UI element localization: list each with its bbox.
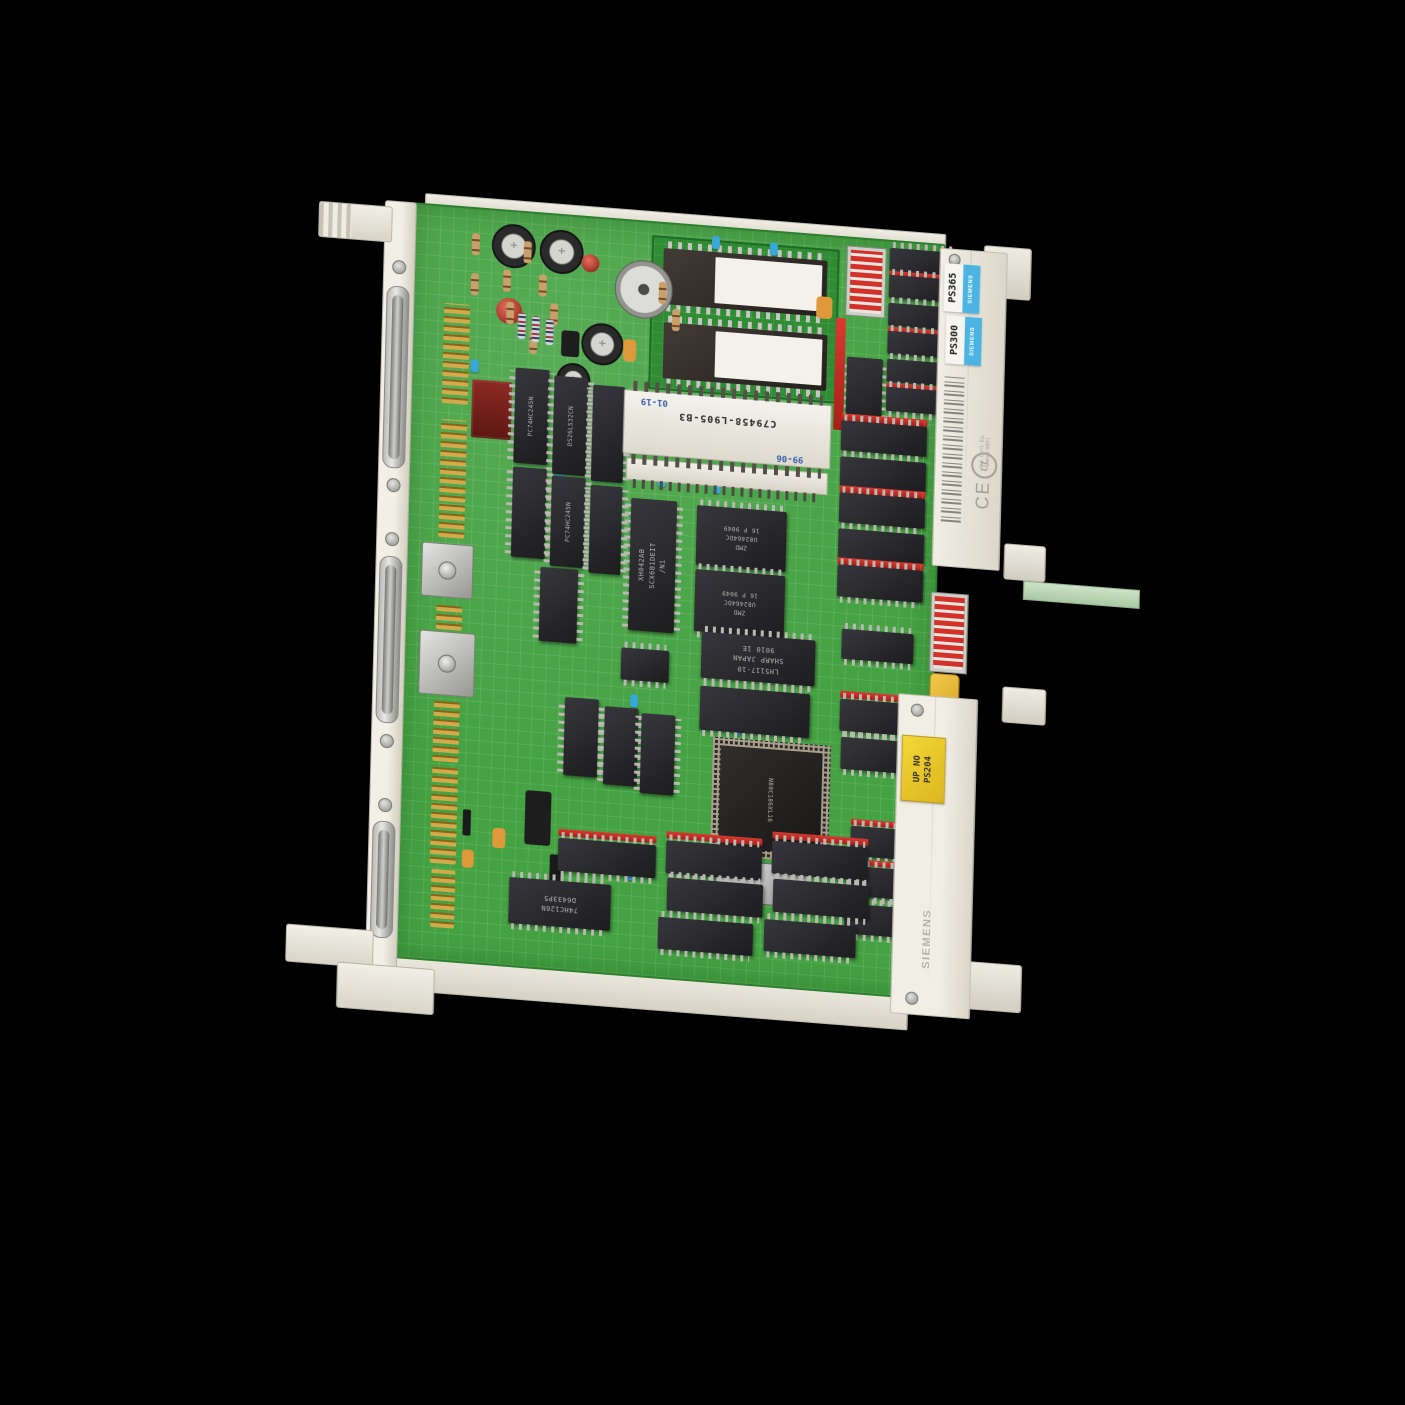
dipswitch [930, 593, 968, 674]
dip-chip [699, 686, 810, 739]
mount-tab [964, 961, 1022, 1013]
rail-screw [905, 991, 918, 1005]
dip-chip: XH042AB SCX6B1DEIT /N1 [628, 498, 677, 634]
dip-chip [621, 647, 670, 683]
part-number-sticker: C79458-L905-B3 [624, 406, 830, 433]
eprom-label-blank [714, 257, 822, 311]
pcb: C79458-L905-B3 01-19 99-06 PC74HC245NDS2… [393, 202, 946, 1000]
cap-disc [581, 254, 599, 273]
res2 [545, 319, 554, 346]
dsub-connector [375, 555, 402, 724]
panel-screw [378, 798, 392, 813]
pins [438, 419, 467, 539]
chip-marking: 74HC126N D6433P5 [508, 877, 611, 931]
chip-marking: N80C186XL16 [710, 737, 831, 864]
panel-foot [336, 962, 435, 1016]
dip-chip [837, 564, 924, 603]
cap-tan [623, 339, 637, 362]
panel-screw [380, 734, 394, 749]
panel-screw [392, 260, 406, 275]
diode [462, 809, 471, 836]
res [523, 241, 532, 264]
pins [436, 605, 463, 631]
res [472, 233, 481, 256]
eprom-chip [662, 248, 827, 317]
dip-chip [558, 838, 657, 879]
module-connector: C79458-L905-B3 01-19 99-06 [622, 389, 831, 469]
dip-chip [773, 879, 870, 920]
chip-marking: ZMD U82464DC 16 P 9049 [696, 505, 787, 572]
model-text: PS365 [947, 272, 959, 303]
brand-text: SIEMENS [968, 275, 975, 304]
barcode [941, 376, 965, 523]
circuit-board: C79458-L905-B3 01-19 99-06 PC74HC245NDS2… [363, 200, 1173, 1092]
board-edge-ledge [1023, 581, 1140, 609]
tr [524, 790, 551, 846]
shield [421, 541, 474, 599]
dipswitch [846, 246, 886, 317]
dip-chip: DS26LS32CN [552, 376, 589, 477]
yellow-id-label: UP NO PS204 [900, 735, 946, 804]
shield [418, 629, 476, 697]
dip-chip [640, 713, 676, 796]
handle-grip-ribs [319, 202, 352, 239]
cap-blu [630, 694, 638, 708]
res [539, 274, 548, 297]
product-photo-siemens-pcb: C79458-L905-B3 01-19 99-06 PC74HC245NDS2… [0, 0, 1405, 1405]
dip-chip: PC74HC245N [549, 476, 585, 569]
mount-tab [1002, 686, 1047, 725]
dip-chip [591, 385, 625, 483]
qfp: N80C186XL16 [710, 737, 831, 864]
cap-el [539, 228, 584, 275]
dsub-connector [382, 285, 410, 469]
date-code: 99-06 [776, 452, 803, 464]
res [506, 302, 515, 325]
brand-text: SIEMENS [970, 327, 977, 356]
chip-marking: LH5117-10 SHARP JAPAN 9010 1E [701, 632, 816, 687]
pins [430, 869, 455, 929]
mount-tab [1003, 543, 1046, 582]
product-label-ps365: PS365 SIEMENS [943, 263, 980, 314]
eprom-label-blank [714, 331, 822, 385]
res2 [517, 313, 526, 340]
pins [430, 767, 458, 865]
yellow-label-text: UP NO PS204 [912, 755, 934, 784]
dip-chip [763, 919, 856, 958]
cap-tan [816, 296, 833, 319]
res2 [531, 316, 540, 343]
front-rail-lower: UP NO PS204 SIEMENS [890, 693, 978, 1019]
tr [561, 330, 580, 357]
pins [432, 699, 460, 763]
res [658, 282, 667, 305]
dip-chip: LH5117-10 SHARP JAPAN 9010 1E [701, 632, 816, 687]
dsub-connector [370, 820, 396, 939]
cert-text: Listed 9B01 [985, 437, 992, 467]
dip-chip: 74HC126N D6433P5 [508, 877, 611, 931]
eprom-chip [662, 322, 827, 391]
date-code: 01-19 [641, 395, 668, 407]
dip-chip [563, 697, 599, 778]
cap-blu [770, 242, 778, 256]
ce-mark: CE [972, 480, 994, 511]
cap-tan [462, 849, 474, 868]
dip-chip: ZMD U82464DC 16 P 9049 [696, 505, 787, 572]
res [471, 273, 480, 296]
pins [442, 303, 471, 405]
dip-chip [841, 629, 914, 665]
front-rail-upper: PS365 SIEMENS PS300 SIEMENS CE UL Ind. C… [932, 248, 1008, 571]
res [503, 269, 512, 292]
extractor-handle-top [318, 201, 393, 243]
model-text: PS300 [949, 325, 961, 356]
panel-screw [386, 478, 400, 493]
cap-el [581, 322, 624, 367]
cap-tan [492, 828, 506, 849]
dip-chip [539, 567, 579, 644]
res [672, 309, 681, 332]
cap-blu [712, 236, 720, 250]
rail-screw [911, 703, 924, 717]
siemens-embossed-logo: SIEMENS [920, 908, 934, 969]
panel-screw [385, 532, 399, 547]
cap-blu [471, 359, 479, 373]
product-label-ps300: PS300 SIEMENS [945, 315, 982, 366]
extractor-handle-bottom [285, 923, 374, 968]
dip-chip [657, 917, 753, 956]
